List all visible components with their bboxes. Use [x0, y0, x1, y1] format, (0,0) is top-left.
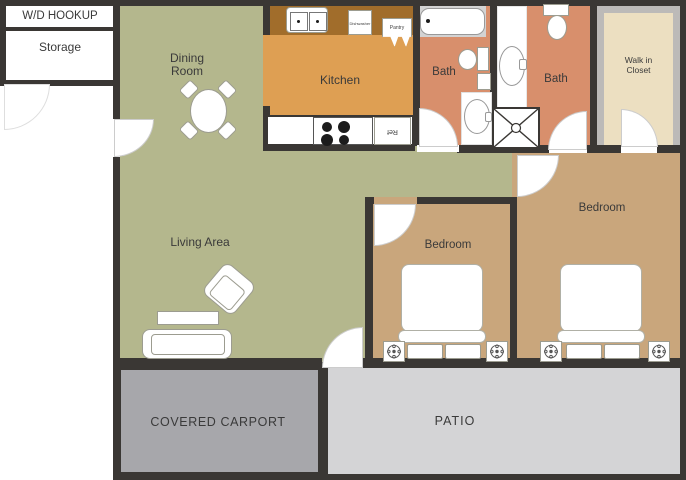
wall-wd-divider: [0, 27, 120, 31]
sofa-cushions: [151, 334, 225, 355]
nightstand-lamp-icon: [383, 341, 405, 362]
room-label-wd-hookup: W/D HOOKUP: [6, 10, 114, 23]
room-label-bath1: Bath: [424, 66, 464, 79]
bed-footboard-icon: [557, 330, 645, 343]
room-label-dining: Dining Room: [160, 52, 214, 79]
refrigerator-icon: Ref: [374, 117, 411, 145]
wall-south-west: [120, 358, 322, 368]
wall-south-east: [363, 358, 680, 368]
bed-duvet-icon: [560, 264, 642, 332]
nightstand-lamp-icon: [486, 341, 508, 362]
room-label-carport: COVERED CARPORT: [118, 415, 318, 429]
room-label-kitchen: Kitchen: [310, 74, 370, 87]
bed-pillow-icon: [407, 344, 443, 359]
nightstand-lamp-icon: [648, 341, 670, 362]
sink-basin: [290, 12, 308, 31]
dishwasher-label: Dishwasher: [350, 21, 371, 26]
shower-glass: [494, 109, 538, 147]
bath1-vanity: [477, 73, 491, 90]
wall-living-bedroom1: [365, 197, 373, 362]
room-label-living: Living Area: [164, 236, 236, 249]
wall-bedroom1-top-b: [417, 197, 517, 204]
sink-basin: [309, 12, 327, 31]
wall-closet-bottom: [657, 145, 680, 153]
room-label-closet: Walk in Closet: [616, 56, 661, 75]
kitchen-sink-icon: [286, 7, 328, 33]
sofa-icon: [142, 329, 232, 359]
toilet-tank-icon: [477, 47, 489, 71]
bed-pillow-icon: [566, 344, 602, 359]
room-label-storage: Storage: [6, 41, 114, 54]
wall-bedroom1-bedroom2: [510, 197, 517, 362]
wall-outer-bottom: [113, 474, 686, 480]
dishwasher-icon: Dishwasher: [348, 10, 372, 35]
wall-bath2-closet: [590, 0, 597, 152]
refrigerator-label: Ref: [387, 128, 398, 135]
bath2-faucet: [519, 59, 527, 70]
nightstand-lamp-icon: [540, 341, 562, 362]
shower-icon: [492, 107, 540, 149]
doorway-closet: [621, 146, 657, 153]
wall-kitchen-stub-top: [263, 0, 270, 35]
wall-carport-patio: [318, 362, 328, 474]
wall-bath-bottom-b: [587, 145, 621, 153]
room-label-bedroom1: Bedroom: [417, 239, 479, 252]
pantry-label: Pantry: [390, 25, 404, 31]
bed-pillow-icon: [445, 344, 481, 359]
bathtub-icon: [420, 8, 485, 35]
bed-duvet-icon: [401, 264, 483, 332]
stove-icon: [313, 117, 373, 145]
wall-outer-right: [680, 0, 686, 480]
room-label-bath2: Bath: [536, 73, 576, 86]
toilet-bowl-icon: [547, 15, 567, 40]
wall-left-lower: [113, 157, 120, 368]
room-label-bedroom2: Bedroom: [571, 202, 633, 215]
bed-footboard-icon: [398, 330, 486, 343]
floor-plan: Dishwasher Pantry Ref: [0, 0, 686, 480]
room-label-patio: PATIO: [405, 414, 505, 428]
wall-outer-top: [0, 0, 686, 6]
bath1-faucet: [485, 112, 492, 122]
bed-pillow-icon: [604, 344, 640, 359]
dining-table-icon: [190, 89, 227, 133]
coffee-table-icon: [157, 311, 219, 325]
wall-left-upper: [113, 0, 120, 119]
storage-door-arc: [4, 84, 50, 130]
